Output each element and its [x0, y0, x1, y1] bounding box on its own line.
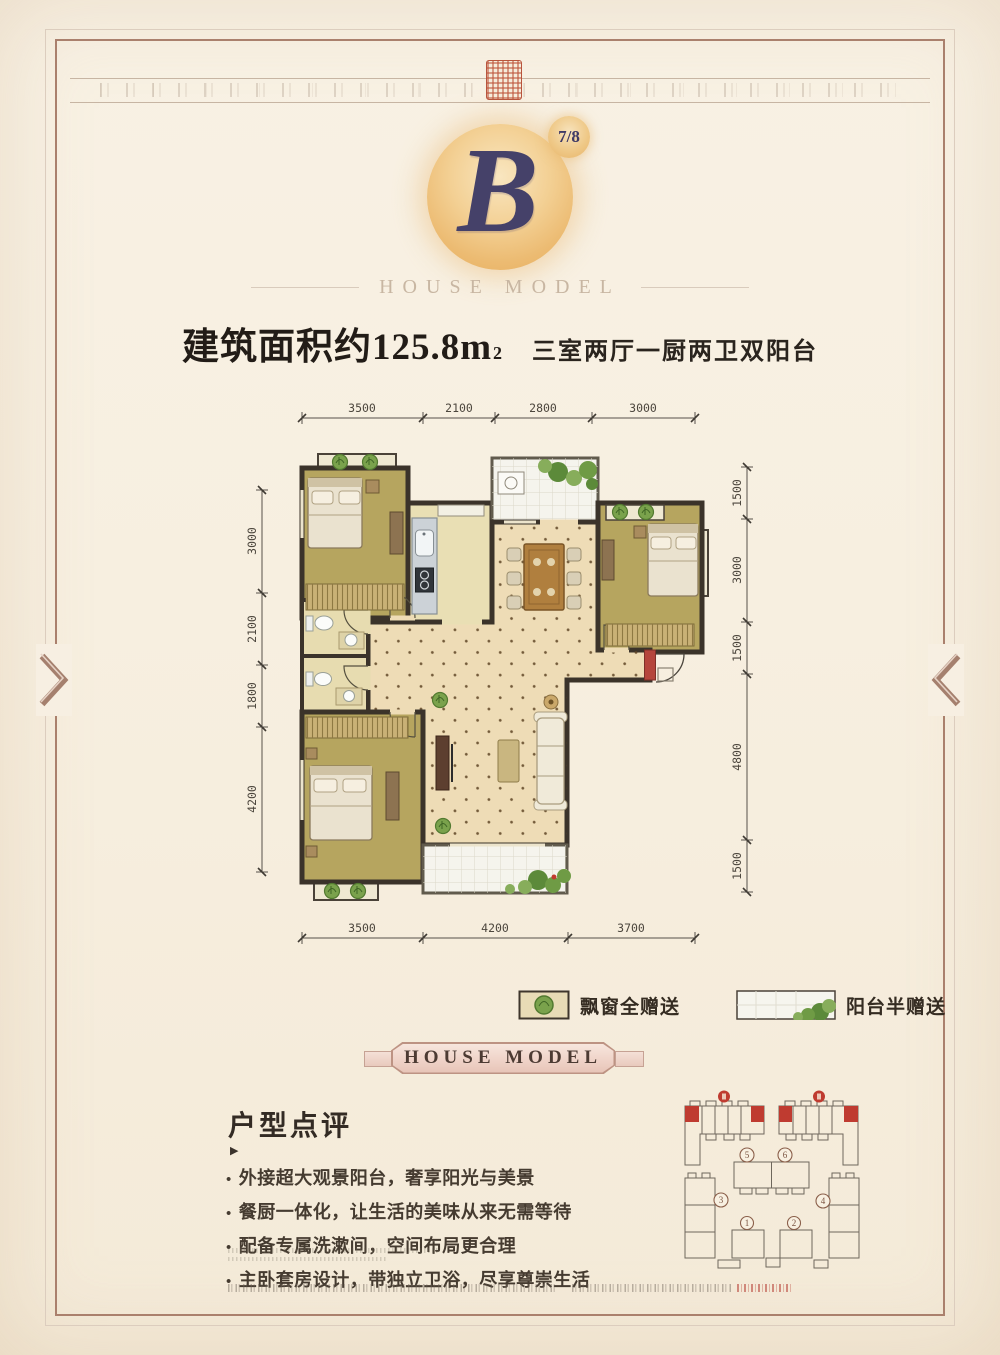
- dimension-label: 4800: [730, 743, 744, 771]
- svg-text:3: 3: [719, 1195, 724, 1205]
- chevron-left-icon: [936, 656, 958, 704]
- dimension-label: 1500: [730, 852, 744, 880]
- banner-text: HOUSE MODEL: [404, 1047, 602, 1069]
- dimension-label: 1500: [730, 634, 744, 662]
- dimension-label: 3000: [629, 401, 657, 415]
- brand-text: HOUSE MODEL: [379, 276, 621, 299]
- red-seal-stamp: [486, 60, 522, 100]
- fine-print-disclaimer: [228, 1284, 558, 1292]
- dimension-label: 3000: [730, 556, 744, 584]
- logo-letter-b: B: [457, 130, 538, 252]
- entry-mat: [645, 650, 656, 680]
- building-number-1: 1: [741, 1217, 754, 1230]
- building-number-4: 4: [816, 1194, 830, 1208]
- building-outline: [780, 1230, 812, 1258]
- area-superscript: 2: [493, 343, 502, 364]
- fine-print-highlight: [737, 1284, 792, 1292]
- svg-text:5: 5: [745, 1150, 750, 1160]
- building-number-5: 5: [740, 1148, 754, 1162]
- dimension-label: 4200: [245, 785, 259, 813]
- dimension-label: 3000: [245, 527, 259, 555]
- brand-divider: HOUSE MODEL: [0, 276, 1000, 299]
- house-model-banner: HOUSE MODEL: [391, 1042, 615, 1074]
- brand-line-left: [251, 287, 359, 288]
- bay-window-master: [314, 882, 378, 900]
- fine-print-note: [228, 1257, 388, 1261]
- dimension-label: 2100: [245, 615, 259, 643]
- review-heading: 户型点评: [228, 1104, 352, 1144]
- dimension-label: 3500: [348, 921, 376, 935]
- building-number-3: 3: [714, 1193, 728, 1207]
- bay-window-legend-icon: [518, 990, 570, 1020]
- brand-line-right: [641, 287, 749, 288]
- building-outline: [685, 1178, 715, 1258]
- review-marker-icon: ▶: [230, 1144, 238, 1157]
- building-number-2: 2: [788, 1217, 801, 1230]
- dimension-label: 2800: [529, 401, 557, 415]
- bullet-icon: •: [226, 1172, 232, 1189]
- building-outline: [829, 1178, 859, 1258]
- area-text: 建筑面积约125.8m: [182, 316, 492, 370]
- bay-window-legend-label: 飘窗全赠送: [580, 992, 680, 1019]
- floorplan-poster: B 7/8 HOUSE MODEL 建筑面积约125.8m2 三室两厅一厨两卫双…: [0, 0, 1000, 1355]
- site-plan: 5 6 3 4 1 2: [662, 1090, 917, 1285]
- review-bullet-text: 外接超大观景阳台，奢享阳光与美景: [239, 1164, 535, 1190]
- fine-print-note: [228, 1248, 438, 1253]
- banner-tab-right: [615, 1051, 644, 1067]
- unit-number-text: 7/8: [558, 127, 580, 147]
- fine-print-disclaimer: [572, 1284, 732, 1292]
- svg-text:1: 1: [745, 1218, 750, 1228]
- entry-step: [658, 668, 673, 681]
- bullet-icon: •: [226, 1206, 232, 1223]
- ornament-line-bottom: [70, 102, 930, 103]
- banner-tab-left: [364, 1051, 393, 1067]
- review-bullet-text: 配备专属洗漱间，空间布局更合理: [239, 1232, 517, 1258]
- furniture-dining: [507, 544, 581, 610]
- legend: 飘窗全赠送 阳台半赠送: [518, 990, 946, 1020]
- building-number-6: 6: [778, 1148, 792, 1162]
- dimension-label: 3700: [617, 921, 645, 935]
- svg-text:4: 4: [821, 1196, 826, 1206]
- balcony-legend-icon: [736, 990, 836, 1020]
- dimension-label: 4200: [481, 921, 509, 935]
- dimension-label: 3500: [348, 401, 376, 415]
- building-outline: [732, 1230, 764, 1258]
- review-bullet-text: 餐厨一体化，让生活的美味从来无需等待: [239, 1198, 572, 1224]
- prev-arrow[interactable]: [36, 644, 72, 716]
- unit-number-badge: 7/8: [548, 116, 590, 158]
- svg-text:6: 6: [783, 1150, 788, 1160]
- layout-text: 三室两厅一厨两卫双阳台: [532, 331, 818, 366]
- svg-text:2: 2: [792, 1218, 797, 1228]
- dimension-label: 1800: [245, 682, 259, 710]
- balcony-legend-label: 阳台半赠送: [846, 992, 946, 1019]
- next-arrow[interactable]: [928, 644, 964, 716]
- page-title: 建筑面积约125.8m2 三室两厅一厨两卫双阳台: [0, 316, 1000, 370]
- floor-plan: 3500 2100 2800 3000 3500 4200 3700 3000 …: [240, 388, 770, 968]
- dimension-label: 1500: [730, 479, 744, 507]
- dimension-label: 2100: [445, 401, 473, 415]
